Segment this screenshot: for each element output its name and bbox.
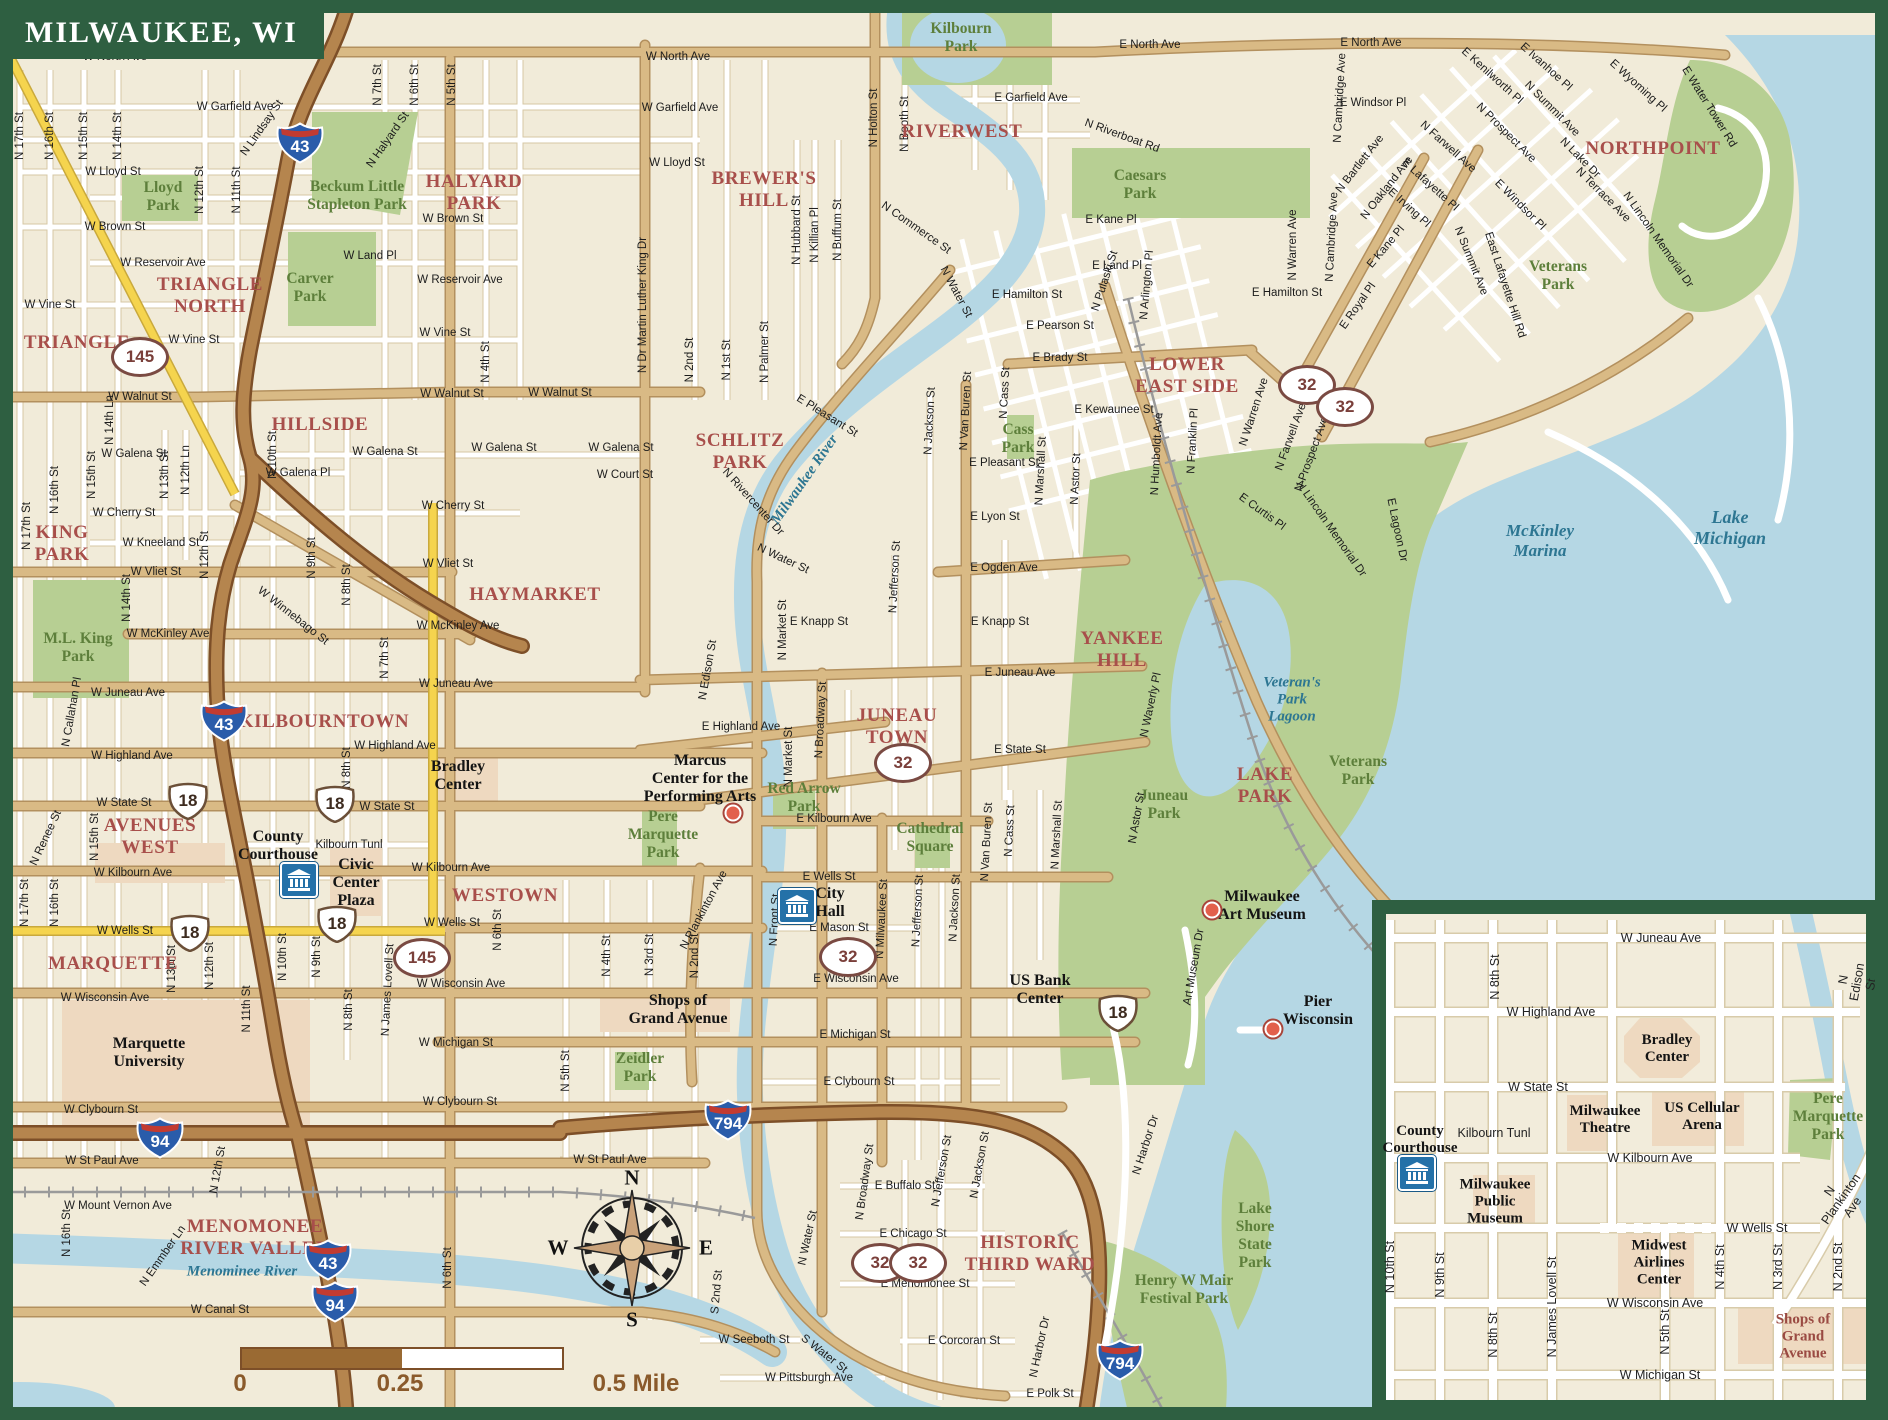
street-label-w-state-st: W State St [360,801,415,813]
street-label-n-summit-ave: N Summit Ave [1522,79,1582,139]
inset-county-courthouse-icon [1398,1155,1436,1191]
inset-street-label-n-8th-st: N 8th St [1486,1312,1500,1357]
street-label-n-4th-st: N 4th St [480,341,492,383]
street-label-n-jefferson-st: N Jefferson St [910,874,926,947]
inset-street-label-n-4th-st: N 4th St [1713,1244,1727,1289]
street-label-w-highland-ave: W Highland Ave [91,750,173,762]
street-label-n-prospect-ave: N Prospect Ave [1474,101,1538,165]
street-label-n-astor-st: N Astor St [1127,791,1148,844]
street-label-n-emmber-ln: N Emmber Ln [138,1224,189,1289]
street-label-e-michigan-st: E Michigan St [820,1029,891,1041]
neighborhood-label-halyard-park: HALYARD PARK [426,171,523,215]
inset-street-label-w-kilbourn-ave: W Kilbourn Ave [1607,1151,1692,1165]
street-label-n-halyard-st: N Halyard St [364,110,411,170]
street-label-w-juneau-ave: W Juneau Ave [91,687,165,699]
street-label-n-9th-st: N 9th St [311,936,323,978]
street-label-n-9th-st: N 9th St [306,537,318,579]
street-label-w-brown-st: W Brown St [85,221,146,233]
street-label-n-harbor-dr: N Harbor Dr [1131,1114,1162,1177]
street-label-w-garfield-ave: W Garfield Ave [197,101,274,113]
park-label-red-arrow-park: Red Arrow Park [767,780,840,816]
street-label-n-marshall-st: N Marshall St [1033,436,1049,506]
park-label-veterans-park: Veterans Park [1529,258,1587,294]
milwaukee-art-museum-marker [1204,902,1221,919]
route-shield-number: 18 [181,923,200,943]
us-route-18-shield: 18 [313,783,357,823]
street-label-e-kane-pl: E Kane Pl [1085,214,1136,226]
route-shield-number: 32 [871,1253,890,1273]
street-label-n-17th-st: N 17th St [19,879,31,927]
street-label-e-chicago-st: E Chicago St [879,1228,946,1240]
interstate-43-shield: 43 [200,700,248,742]
street-label-n-6th-st: N 6th St [492,909,504,951]
street-label-n-holton-st: N Holton St [868,89,880,148]
inset-street-label-w-juneau-ave: W Juneau Ave [1621,931,1701,945]
street-label-n-cambridge-ave: N Cambridge Ave [1332,53,1349,143]
street-label-w-mckinley-ave: W McKinley Ave [417,620,500,632]
scale-zero-label: 0 [233,1370,246,1398]
street-label-e-windsor-pl: E Windsor Pl [1340,97,1406,109]
park-label-zeidler-park: Zeidler Park [616,1050,664,1086]
street-label-n-cass-st: N Cass St [1003,805,1018,857]
scale-quarter-label: 0.25 [377,1370,424,1398]
street-label-n-15th-st: N 15th St [78,112,90,160]
street-label-n-harbor-dr: N Harbor Dr [1028,1315,1053,1378]
street-label-n-2nd-st: N 2nd St [684,338,696,383]
landmark-label-county-courthouse: County Courthouse [238,828,318,864]
street-label-w-reservoir-ave: W Reservoir Ave [120,257,205,269]
street-label-n-11th-st: N 11th St [241,985,253,1032]
neighborhood-label-triangle: TRIANGLE [24,332,130,354]
street-label-w-mckinley-ave: W McKinley Ave [127,628,210,640]
neighborhood-label-lower-east-side: LOWER EAST SIDE [1135,354,1239,398]
street-label-w-walnut-st: W Walnut St [420,388,483,400]
street-label-w-michigan-st: W Michigan St [419,1037,493,1049]
neighborhood-label-brewer-s-hill: BREWER'S HILL [711,168,816,212]
us-route-18-shield: 18 [1096,992,1140,1032]
interstate-94-shield: 94 [311,1281,359,1323]
street-label-e-clybourn-st: E Clybourn St [824,1076,895,1088]
route-shield-number: 32 [894,753,913,773]
street-label-n-water-st: N Water St [755,542,811,576]
street-label-n-7th-st: N 7th St [379,637,391,679]
neighborhood-label-king-park: KING PARK [35,522,90,566]
street-label-n-jackson-st: N Jackson St [922,387,938,455]
street-label-n-6th-st: N 6th St [409,64,421,106]
street-label-n-14th-st: N 14th St [121,574,133,622]
street-label-n-12th-st: N 12th St [208,1145,228,1194]
scale-bar-empty-segment [402,1349,562,1368]
street-label-n-prospect-ave: N Prospect Ave [1293,415,1331,493]
pier-wisconsin-marker [1265,1021,1282,1038]
route-shield-number: 32 [909,1253,928,1273]
street-label-n-13th-st: N 13th St [159,451,171,499]
compass-south-label: S [626,1308,638,1333]
street-label-n-14th-ln: N 14th Ln [104,395,116,445]
street-label-e-garfield-ave: E Garfield Ave [994,92,1067,104]
street-label-n-2nd-st: N 2nd St [689,934,701,979]
park-label-beckum-little-stapleton-park: Beckum Little Stapleton Park [307,178,406,214]
street-label-n-cambridge-ave: N Cambridge Ave [1324,192,1341,282]
interstate-794-shield: 794 [1096,1339,1144,1381]
street-label-n-franklin-pl: N Franklin Pl [1185,408,1200,474]
milwaukee-city-map[interactable]: W North AveW North AveE North AveE North… [0,0,1888,1420]
street-label-n-15th-st: N 15th St [86,451,98,499]
landmark-label-milwaukee-art-museum: Milwaukee Art Museum [1218,888,1306,924]
street-label-w-north-ave: W North Ave [646,51,710,63]
street-label-n-waverly-pl: N Waverly Pl [1138,671,1163,738]
street-label-e-north-ave: E North Ave [1340,37,1401,49]
landmark-label-city-hall: City Hall [815,885,844,921]
street-label-n-5th-st: N 5th St [560,1050,572,1092]
street-label-w-lloyd-st: W Lloyd St [649,157,705,169]
state-route-32-shield: 32 [851,1243,909,1283]
street-label-e-pleasant-st: E Pleasant St [969,457,1039,469]
street-label-e-polk-st: E Polk St [1026,1388,1073,1400]
street-label-w-pittsburgh-ave: W Pittsburgh Ave [765,1372,853,1384]
route-shield-number: 43 [291,137,310,157]
street-label-n-3rd-st: N 3rd St [644,934,656,976]
street-label-w-vliet-st: W Vliet St [131,566,181,578]
street-label-w-st-paul-ave: W St Paul Ave [573,1154,646,1166]
route-shield-number: 18 [326,794,345,814]
neighborhood-label-marquette: MARQUETTE [48,953,178,975]
city-hall-icon [778,888,816,924]
interstate-94-shield: 94 [136,1117,184,1159]
street-label-n-cass-st: N Cass St [998,367,1013,419]
street-label-e-royal-pl: E Royal Pl [1338,281,1379,332]
route-shield-number: 32 [1336,397,1355,417]
neighborhood-label-avenues-west: AVENUES WEST [104,815,197,859]
street-label-w-galena-st: W Galena St [471,442,536,454]
street-label-w-kneeland-st: W Kneeland St [123,537,200,549]
neighborhood-label-northpoint: NORTHPOINT [1585,138,1720,160]
landmark-label-civic-center-plaza: Civic Center Plaza [332,856,379,910]
state-route-32-shield: 32 [1278,365,1336,405]
street-label-e-mason-st: E Mason St [809,922,868,934]
neighborhood-label-schlitz-park: SCHLITZ PARK [696,430,785,474]
state-route-145-shield: 145 [393,938,451,978]
street-label-w-reservoir-ave: W Reservoir Ave [417,274,502,286]
neighborhood-label-juneau-town: JUNEAU TOWN [857,705,938,749]
street-label-n-10th-st: N 10th St [267,431,279,479]
state-route-32-shield: 32 [889,1243,947,1283]
street-label-e-highland-ave: E Highland Ave [702,721,780,733]
neighborhood-label-menomonee-river-valley: MENOMONEE RIVER VALLEY [180,1216,330,1260]
street-label-w-canal-st: W Canal St [191,1304,249,1316]
inset-street-label-n-9th-st: N 9th St [1433,1252,1447,1297]
street-label-w-garfield-ave: W Garfield Ave [642,102,719,114]
scale-bar [240,1347,564,1370]
neighborhood-label-yankee-hill: YANKEE HILL [1080,628,1163,672]
street-label-e-wyoming-pl: E Wyoming Pl [1607,57,1669,114]
compass-west-label: W [548,1236,569,1261]
park-label-cass-park: Cass Park [1002,421,1035,457]
street-label-w-mount-vernon-ave: W Mount Vernon Ave [64,1200,172,1212]
street-label-w-clybourn-st: W Clybourn St [423,1096,497,1108]
compass-north-label: N [624,1166,639,1191]
street-label-e-ivanhoe-pl: E Ivanhoe Pl [1518,41,1574,94]
park-label-caesars-park: Caesars Park [1114,167,1167,203]
street-label-n-commerce-st: N Commerce St [879,200,953,257]
state-route-145-shield: 145 [111,337,169,377]
street-label-e-land-pl: E Land Pl [1092,260,1142,272]
street-label-e-kane-pl: E Kane Pl [1365,224,1407,271]
street-label-n-jefferson-st: N Jefferson St [930,1134,954,1208]
street-label-e-north-ave: E North Ave [1119,39,1180,51]
water-label-lake-michigan: Lake Michigan [1694,507,1766,549]
street-label-n-pulaski-st: N Pulaski St [1090,249,1121,312]
street-label-n-rivercenter-dr: N Rivercenter Dr [720,466,786,538]
inset-landmark-label-milwaukee-public-museum: Milwaukee Public Museum [1460,1177,1531,1228]
park-label-kilbourn-park: Kilbourn Park [930,20,991,56]
park-label-m-l-king-park: M.L. King Park [43,630,112,666]
street-label-w-vliet-st: W Vliet St [423,558,473,570]
street-label-w-wells-st: W Wells St [97,925,153,937]
street-label-n-lake-dr: N Lake Dr [1557,135,1602,180]
park-label-henry-w-mair-festival-park: Henry W Mair Festival Park [1135,1272,1233,1308]
street-label-n-17th-st: N 17th St [14,112,26,160]
street-label-n-jackson-st: N Jackson St [947,874,963,942]
street-label-n-market-st: N Market St [777,600,789,661]
street-label-w-cherry-st: W Cherry St [93,507,156,519]
street-label-n-booth-st: N Booth St [899,96,911,152]
map-title-text: MILWAUKEE, WI [25,16,298,49]
street-label-e-kenilworth-pl: E Kenilworth Pl [1459,45,1525,106]
inset-landmark-label-milwaukee-theatre: Milwaukee Theatre [1570,1103,1641,1137]
street-label-w-vine-st: W Vine St [420,327,471,339]
street-label-n-warren-ave: N Warren Ave [1287,210,1299,281]
street-label-e-state-st: E State St [994,744,1046,756]
inset-landmark-label-midwest-airlines-center: Midwest Airlines Center [1632,1238,1687,1289]
street-label-w-highland-ave: W Highland Ave [354,740,436,752]
street-label-n-15th-st: N 15th St [89,813,101,861]
interstate-43-shield: 43 [304,1239,352,1281]
street-label-art-museum-dr: Art Museum Dr [1181,928,1206,1006]
landmark-label-pier-wisconsin: Pier Wisconsin [1283,993,1353,1029]
street-label-n-1st-st: N 1st St [721,340,733,381]
us-route-18-shield: 18 [168,912,212,952]
street-label-n-8th-st: N 8th St [341,564,353,606]
us-route-18-shield: 18 [315,903,359,943]
neighborhood-label-triangle-north: TRIANGLE NORTH [157,274,263,318]
street-label-n-lincoln-memorial-dr: N Lincoln Memorial Dr [1293,479,1368,579]
neighborhood-label-westown: WESTOWN [452,885,558,907]
inset-street-label-n-plankinton-ave: N Plankinton Ave [1807,1163,1875,1235]
route-shield-number: 145 [126,347,154,367]
street-label-n-plankinton-ave: N Plankinton Ave [678,869,730,952]
marcus-center-marker [725,805,742,822]
map-title: MILWAUKEE, WI [9,9,324,59]
park-label-carver-park: Carver Park [286,270,333,306]
water-label-veteran-s-park-lagoon: Veteran's Park Lagoon [1263,675,1321,726]
street-label-n-farwell-ave: N Farwell Ave [1273,402,1308,473]
map-label-layer: W North AveW North AveE North AveE North… [0,0,1888,1420]
inset-street-label-n-8th-st: N 8th St [1488,954,1502,999]
street-label-e-pleasant-st: E Pleasant St [794,392,859,439]
route-shield-number: 43 [319,1254,338,1274]
street-label-n-market-st: N Market St [783,727,795,788]
street-label-n-humboldt-ave: N Humboldt Ave [1149,412,1165,495]
street-label-w-kilbourn-ave: W Kilbourn Ave [412,862,490,874]
inset-street-label-n-10th-st: N 10th St [1383,1241,1397,1293]
park-label-veterans-park: Veterans Park [1329,753,1387,789]
landmark-label-marquette-university: Marquette University [113,1035,186,1071]
street-label-e-menomonee-st: E Menomonee St [881,1278,970,1290]
street-label-w-court-st: W Court St [597,469,653,481]
street-label-n-farwell-ave: N Farwell Ave [1418,119,1479,175]
route-shield-number: 94 [151,1132,170,1152]
inset-street-label-w-wisconsin-ave: W Wisconsin Ave [1607,1296,1703,1310]
street-label-kilbourn-tunl: Kilbourn Tunl [315,839,382,851]
street-label-w-vine-st: W Vine St [169,334,220,346]
street-label-w-galena-st: W Galena St [101,448,166,460]
inset-street-label-n-5th-st: N 5th St [1658,1309,1672,1354]
street-label-n-17th-st: N 17th St [21,502,33,550]
inset-street-label-w-highland-ave: W Highland Ave [1507,1005,1596,1019]
street-label-w-winnebago-st: W Winnebago St [255,585,330,648]
inset-street-label-n-edison-st: N Edison St [1833,960,1881,1005]
neighborhood-label-riverwest: RIVERWEST [902,121,1023,143]
street-label-n-hubbard-st: N Hubbard St [791,195,803,265]
street-label-n-callahan-pl: N Callahan Pl [60,676,84,747]
street-label-w-wisconsin-ave: W Wisconsin Ave [417,978,506,990]
route-shield-number: 18 [1109,1003,1128,1023]
street-label-n-12th-st: N 12th St [194,166,206,214]
street-label-e-corcoran-st: E Corcoran St [928,1335,1000,1347]
street-label-n-lindsay-st: N Lindsay St [238,98,285,158]
street-label-n-dr-martin-luther-king-dr: N Dr Martin Luther King Dr [637,237,649,373]
park-label-lloyd-park: Lloyd Park [144,179,183,215]
street-label-n-warren-ave: N Warren Ave [1237,376,1270,447]
park-label-lake-shore-state-park: Lake Shore State Park [1236,1200,1274,1272]
street-label-n-astor-st: N Astor St [1069,453,1084,505]
street-label-w-wisconsin-ave: W Wisconsin Ave [61,992,150,1004]
park-label-juneau-park: Juneau Park [1140,787,1188,823]
route-shield-number: 794 [1106,1354,1134,1374]
scale-half-mile-label: 0.5 Mile [593,1370,680,1398]
street-label-e-pearson-st: E Pearson St [1026,320,1094,332]
street-label-n-jefferson-st: N Jefferson St [887,540,903,613]
water-label-milwaukee-river: Milwaukee River [768,432,842,528]
route-shield-number: 18 [179,791,198,811]
scale-bar-filled-segment [242,1349,402,1368]
street-label-e-kilbourn-ave: E Kilbourn Ave [796,813,871,825]
county-courthouse-icon [280,862,318,898]
state-route-32-shield: 32 [1316,387,1374,427]
street-label-n-10th-st: N 10th St [277,933,289,981]
street-label-n-killian-pl: N Killian Pl [809,207,821,263]
street-label-w-galena-pl: W Galena Pl [266,467,331,479]
street-label-e-lagoon-dr: E Lagoon Dr [1384,497,1409,563]
street-label-n-13th-st: N 13th St [166,945,178,993]
street-label-w-wells-st: W Wells St [424,917,480,929]
street-label-n-16th-st: N 16th St [49,879,61,927]
route-shield-number: 794 [714,1114,742,1134]
street-label-w-state-st: W State St [97,797,152,809]
street-label-e-wells-st: E Wells St [803,871,856,883]
street-label-w-brown-st: W Brown St [423,213,484,225]
street-label-n-8th-st: N 8th St [341,747,353,789]
street-label-n-van-buren-st: N Van Buren St [979,802,995,882]
street-label-n-5th-st: N 5th St [446,64,458,106]
street-label-e-kewaunee-st: E Kewaunee St [1074,404,1153,416]
landmark-label-bradley-center: Bradley Center [431,758,485,794]
route-shield-number: 18 [328,914,347,934]
street-label-w-seeboth-st: W Seeboth St [719,1334,790,1346]
street-label-e-knapp-st: E Knapp St [971,616,1029,628]
inset-street-label-n-2nd-st: N 2nd St [1831,1243,1845,1292]
street-label-n-16th-st: N 16th St [61,1209,73,1257]
street-label-e-buffalo-st: E Buffalo St [875,1180,936,1192]
street-label-n-van-buren-st: N Van Buren St [958,371,974,451]
street-label-w-galena-st: W Galena St [352,446,417,458]
street-label-n-7th-st: N 7th St [372,64,384,106]
street-label-e-hamilton-st: E Hamilton St [992,289,1062,301]
street-label-east-lafayette-hill-rd: East Lafayette Hill Rd [1482,231,1528,340]
street-label-n-broadway-st: N Broadway St [813,681,829,758]
water-label-mckinley-marina: McKinley Marina [1506,521,1574,561]
state-route-32-shield: 32 [819,937,877,977]
street-label-e-curtis-pl: E Curtis Pl [1236,491,1287,533]
street-label-n-milwaukee-st: N Milwaukee St [874,879,890,959]
street-label-n-renee-st: N Renee St [28,809,64,868]
street-label-n-james-lovell-st: N James Lovell St [380,943,397,1036]
street-label-e-windsor-pl: E Windsor Pl [1492,177,1547,232]
neighborhood-label-haymarket: HAYMARKET [469,584,600,606]
street-label-n-12th-st: N 12th St [199,531,211,579]
street-label-w-juneau-ave: W Juneau Ave [419,678,493,690]
landmark-label-us-bank-center: US Bank Center [1010,972,1071,1008]
route-shield-number: 145 [408,948,436,968]
landmark-label-shops-of-grand-avenue: Shops of Grand Avenue [629,992,728,1028]
park-label-pere-marquette-park: Pere Marquette Park [628,808,698,862]
park-label-cathedral-square: Cathedral Square [896,820,963,856]
street-label-w-lloyd-st: W Lloyd St [85,166,141,178]
street-label-n-16th-st: N 16th St [49,466,61,514]
inset-street-label-n-james-lovell-st: N James Lovell St [1545,1257,1559,1358]
street-label-w-land-pl: W Land Pl [343,250,396,262]
street-label-w-vine-st: W Vine St [25,299,76,311]
street-label-n-buffum-st: N Buffum St [832,199,844,261]
street-label-n-14th-st: N 14th St [112,112,124,160]
street-label-n-bartlett-ave: N Bartlett Ave [1334,133,1387,196]
street-label-n-6th-st: N 6th St [442,1247,454,1289]
street-label-n-lincoln-memorial-dr: N Lincoln Memorial Dr [1620,190,1695,290]
route-shield-number: 94 [326,1296,345,1316]
street-label-n-16th-st: N 16th St [44,112,56,160]
street-label-w-walnut-st: W Walnut St [528,387,591,399]
street-label-e-lafayette-pl: E Lafayette Pl [1399,157,1460,214]
neighborhood-label-hillside: HILLSIDE [272,414,369,436]
street-label-e-water-tower-rd: E Water Tower Rd [1679,65,1738,150]
inset-landmark-label-county-courthouse: County Courthouse [1382,1123,1457,1157]
street-label-w-cherry-st: W Cherry St [422,500,485,512]
compass-east-label: E [699,1236,713,1261]
neighborhood-label-lake-park: LAKE PARK [1237,764,1293,808]
street-label-n-12th-st: N 12th St [204,942,216,990]
street-label-w-kilbourn-ave: W Kilbourn Ave [94,867,172,879]
interstate-794-shield: 794 [704,1099,752,1141]
inset-park-label-pere-marquette-park: Pere Marquette Park [1793,1090,1863,1144]
street-label-e-juneau-ave: E Juneau Ave [985,667,1056,679]
state-route-32-shield: 32 [874,743,932,783]
water-label-menominee-river: Menominee River [187,1264,297,1281]
street-label-e-brady-st: E Brady St [1033,352,1088,364]
inset-landmark-label-bradley-center: Bradley Center [1642,1032,1693,1066]
interstate-43-shield: 43 [276,122,324,164]
street-label-n-arlington-pl: N Arlington Pl [1138,250,1156,320]
